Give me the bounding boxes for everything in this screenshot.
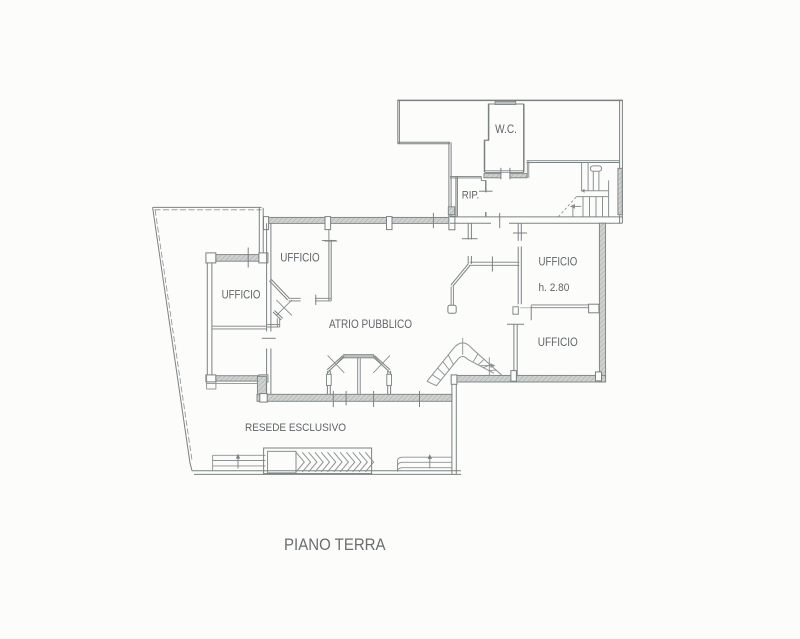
- svg-text:UFFICIO: UFFICIO: [538, 336, 578, 349]
- svg-text:PIANO TERRA: PIANO TERRA: [284, 535, 386, 554]
- svg-text:UFFICIO: UFFICIO: [539, 256, 578, 269]
- svg-text:W.C.: W.C.: [495, 124, 517, 136]
- svg-text:ATRIO PUBBLICO: ATRIO PUBBLICO: [329, 317, 412, 331]
- svg-text:RESEDE ESCLUSIVO: RESEDE ESCLUSIVO: [245, 422, 346, 434]
- svg-text:UFFICIO: UFFICIO: [280, 251, 319, 264]
- svg-text:h. 2.80: h. 2.80: [539, 282, 570, 294]
- svg-text:UFFICIO: UFFICIO: [222, 288, 261, 301]
- svg-text:RIP.: RIP.: [462, 190, 480, 202]
